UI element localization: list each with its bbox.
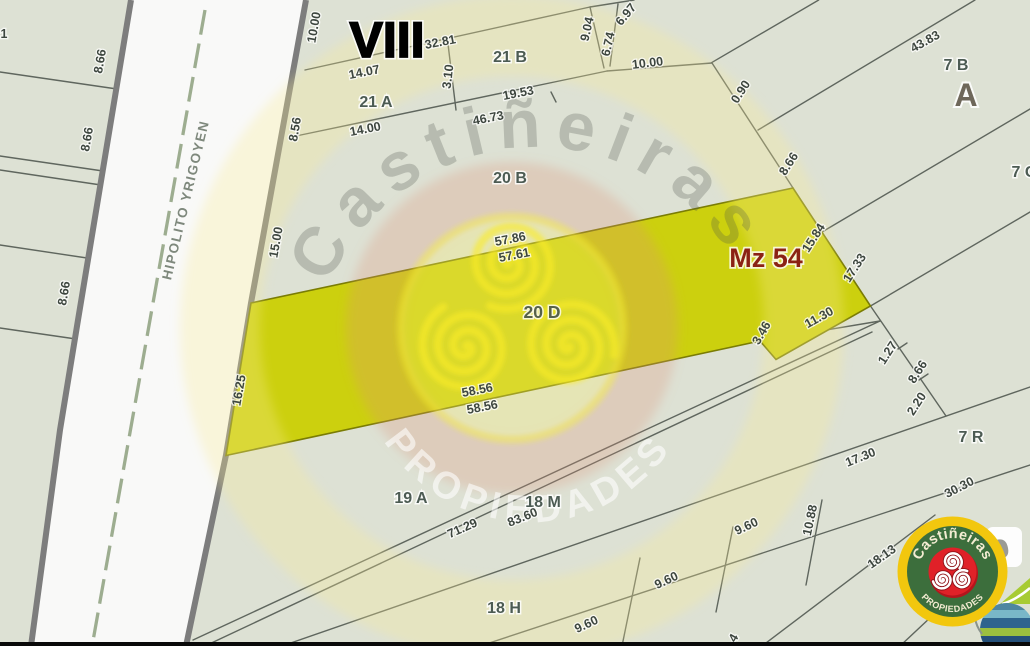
svg-text:3.10: 3.10 [440, 64, 457, 90]
svg-text:7 B: 7 B [944, 57, 969, 74]
svg-text:VIII: VIII [349, 12, 424, 68]
svg-text:Mz 54: Mz 54 [729, 243, 803, 273]
svg-text:19 A: 19 A [394, 490, 428, 507]
svg-text:7 R: 7 R [959, 429, 984, 446]
svg-text:A: A [954, 77, 977, 113]
svg-text:20 B: 20 B [493, 170, 527, 187]
svg-text:18 H: 18 H [487, 600, 521, 617]
svg-text:20 D: 20 D [524, 302, 561, 322]
svg-text:21 A: 21 A [359, 94, 393, 111]
svg-text:7 C: 7 C [1012, 164, 1030, 181]
svg-text:21 B: 21 B [493, 49, 527, 66]
svg-text:1: 1 [1, 27, 8, 41]
